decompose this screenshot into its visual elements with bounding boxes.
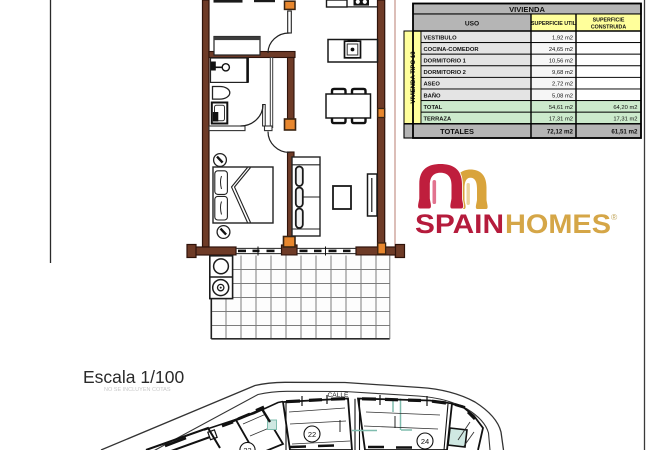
svg-text:ASEO: ASEO xyxy=(424,82,441,88)
svg-text:DORMITORIO 1: DORMITORIO 1 xyxy=(424,59,467,65)
svg-text:TERRAZA: TERRAZA xyxy=(424,117,453,123)
svg-text:USO: USO xyxy=(465,21,479,28)
svg-text:5,08 m2: 5,08 m2 xyxy=(552,93,573,99)
svg-text:VIVIENDA: VIVIENDA xyxy=(509,5,545,14)
svg-text:COCINA-COMEDOR: COCINA-COMEDOR xyxy=(424,47,480,53)
svg-text:Escala 1/100: Escala 1/100 xyxy=(83,367,184,387)
svg-text:SUPERFICIE UTIL: SUPERFICIE UTIL xyxy=(531,21,577,27)
svg-text:VIVIENDA TIPO 13: VIVIENDA TIPO 13 xyxy=(411,51,417,104)
svg-text:VESTIBULO: VESTIBULO xyxy=(424,35,458,41)
svg-text:TOTAL: TOTAL xyxy=(424,105,443,111)
svg-text:BAÑO: BAÑO xyxy=(424,92,442,99)
svg-text:1,92 m2: 1,92 m2 xyxy=(552,35,573,41)
svg-text:TOTALES: TOTALES xyxy=(440,127,474,136)
svg-text:22: 22 xyxy=(308,430,316,439)
svg-text:DORMITORIO 2: DORMITORIO 2 xyxy=(424,70,466,76)
svg-text:®: ® xyxy=(611,212,618,222)
svg-text:10,56 m2: 10,56 m2 xyxy=(549,59,573,65)
svg-text:24,65 m2: 24,65 m2 xyxy=(549,47,573,53)
svg-text:54,61 m2: 54,61 m2 xyxy=(549,105,573,111)
svg-text:64,20 m2: 64,20 m2 xyxy=(613,105,637,111)
svg-text:SPAIN: SPAIN xyxy=(415,209,504,239)
svg-text:24: 24 xyxy=(421,437,429,446)
svg-text:2,72 m2: 2,72 m2 xyxy=(552,82,573,88)
svg-text:NO SE INCLUYEN COTAS: NO SE INCLUYEN COTAS xyxy=(104,387,171,393)
svg-text:SUPERFICIE: SUPERFICIE xyxy=(593,18,625,24)
svg-text:9,68 m2: 9,68 m2 xyxy=(552,70,573,76)
svg-text:23: 23 xyxy=(243,446,251,450)
svg-text:HOMES: HOMES xyxy=(505,209,611,239)
svg-text:CONSTRUIDA: CONSTRUIDA xyxy=(591,25,626,31)
svg-text:72,12 m2: 72,12 m2 xyxy=(547,129,574,136)
svg-text:61,51 m2: 61,51 m2 xyxy=(611,129,638,136)
svg-text:17,31 m2: 17,31 m2 xyxy=(549,117,573,123)
svg-text:17,31 m2: 17,31 m2 xyxy=(613,117,637,123)
